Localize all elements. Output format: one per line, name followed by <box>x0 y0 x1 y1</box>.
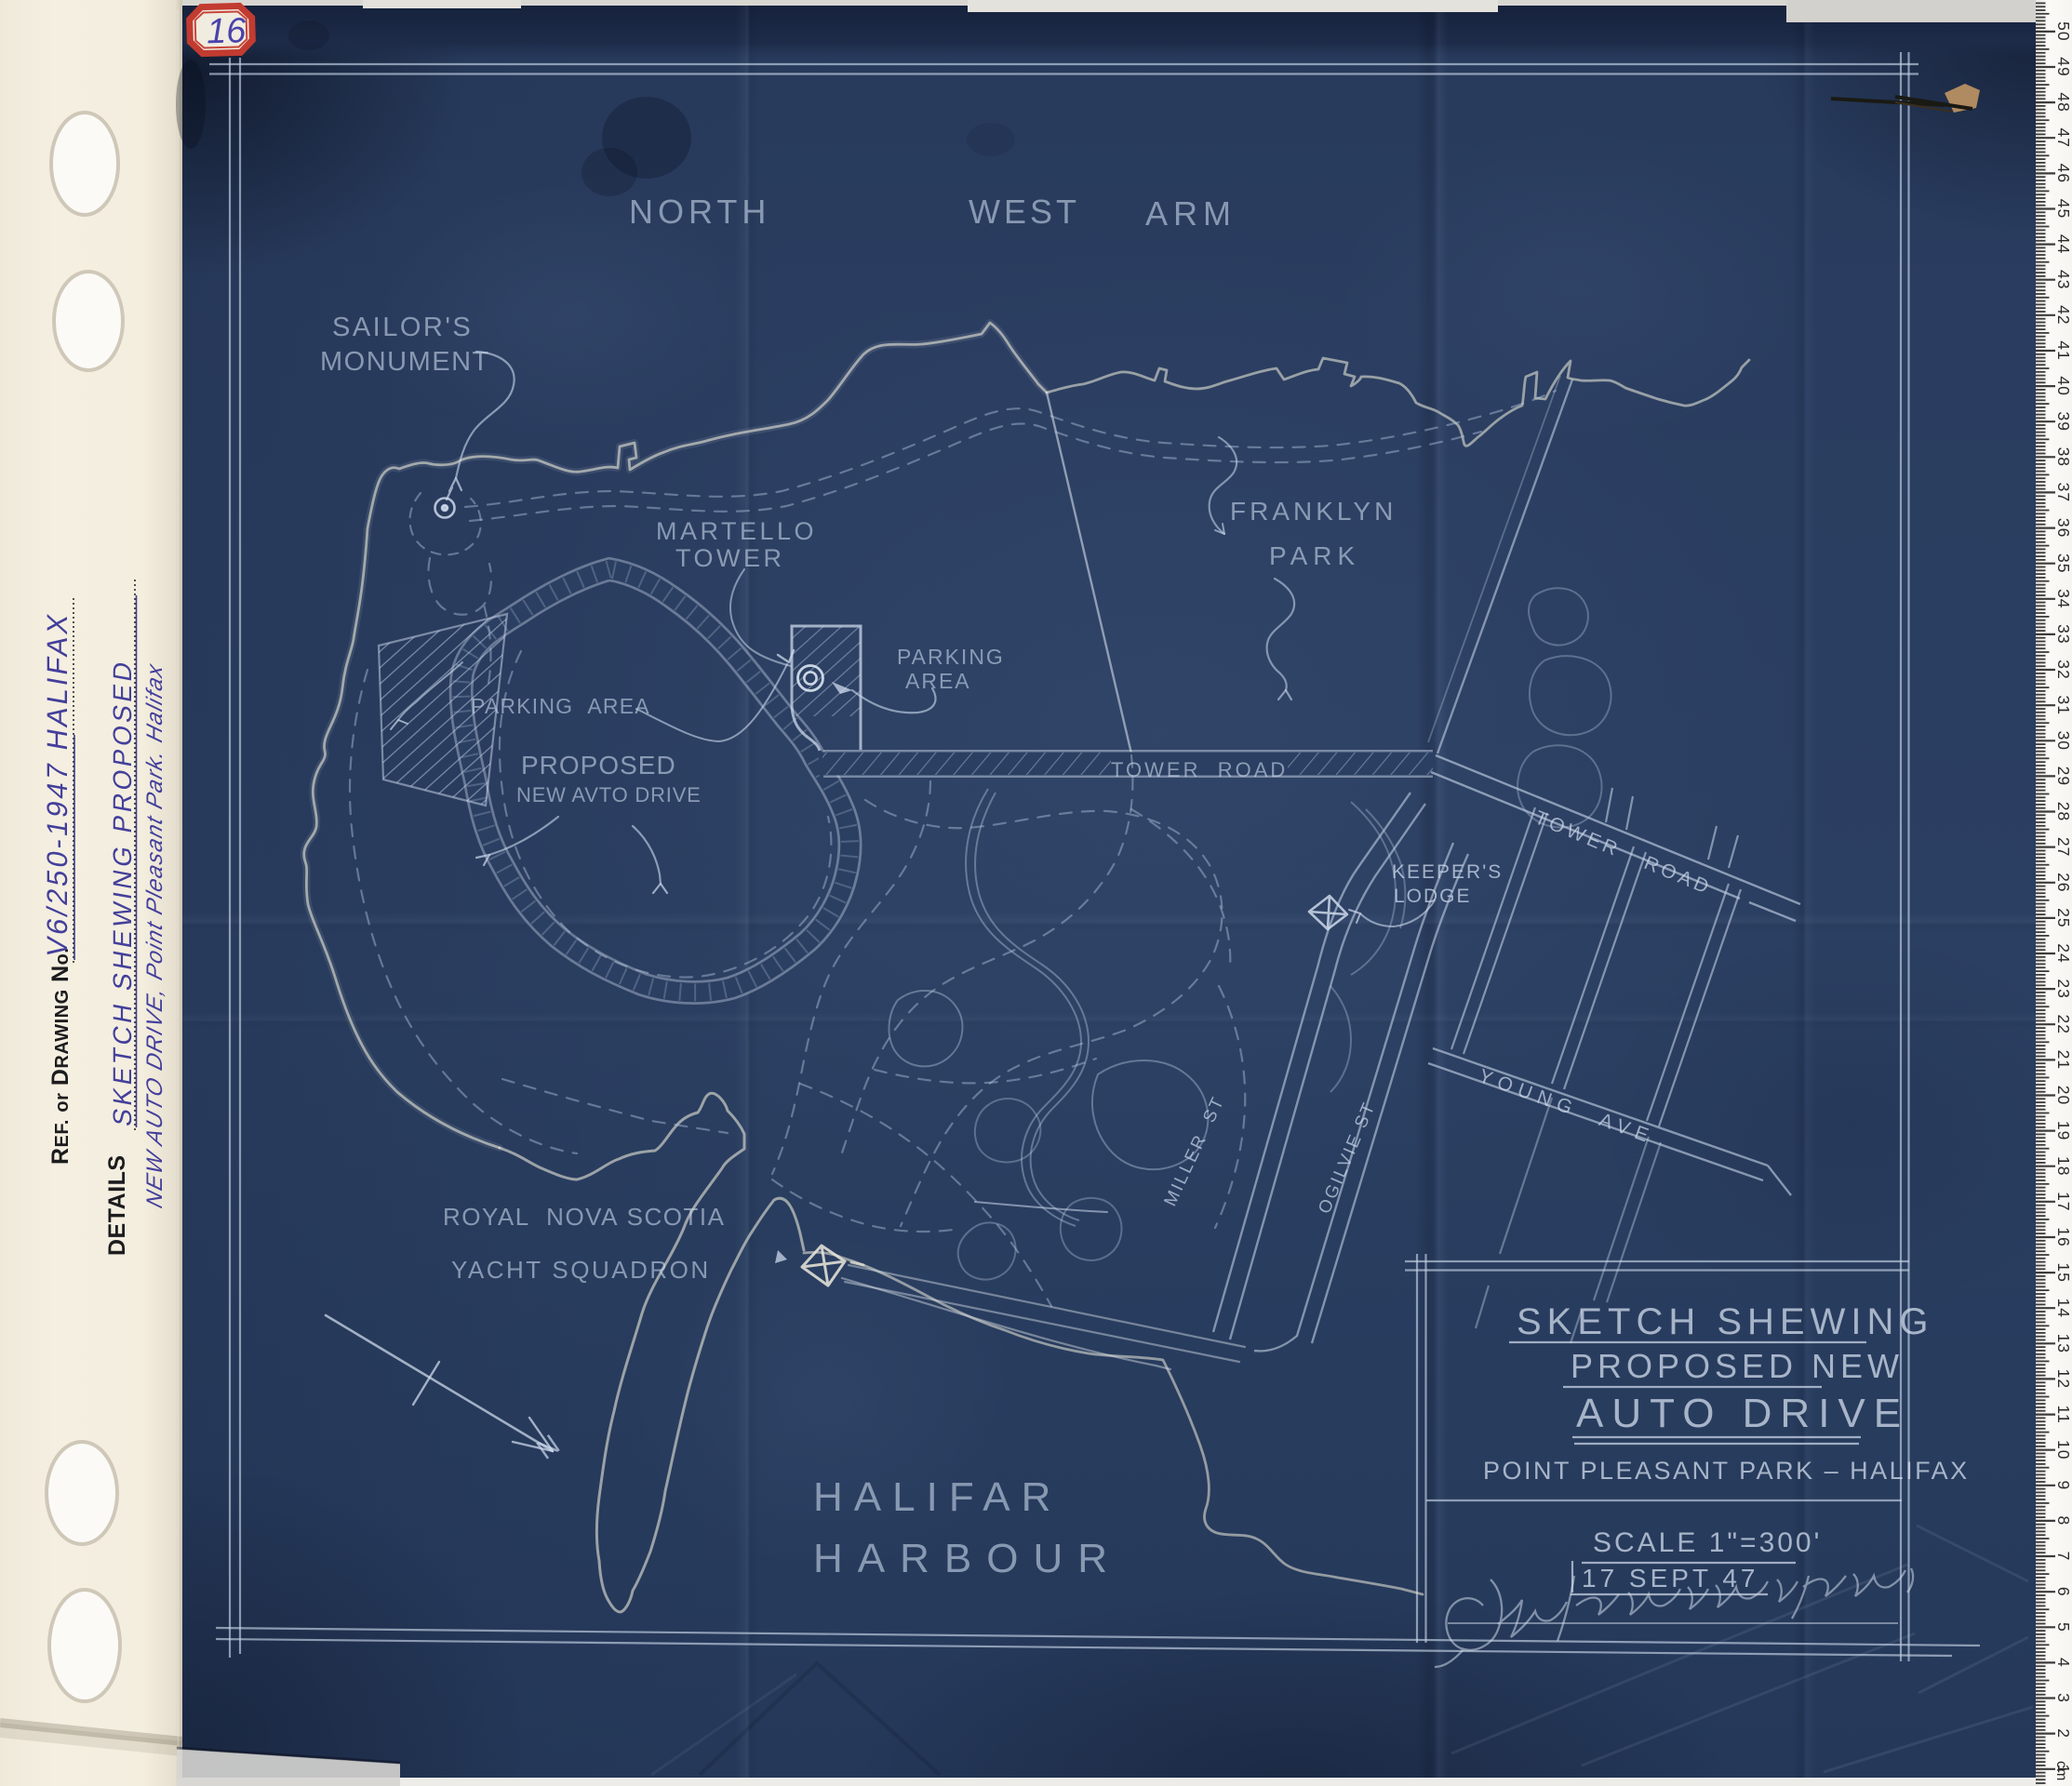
svg-text:AREA: AREA <box>905 669 971 693</box>
svg-text:PARK: PARK <box>1269 541 1360 570</box>
svg-text:43: 43 <box>2054 270 2072 289</box>
svg-text:28: 28 <box>2054 802 2072 821</box>
svg-text:39: 39 <box>2054 411 2072 431</box>
svg-text:10: 10 <box>2054 1440 2072 1459</box>
svg-text:25: 25 <box>2054 908 2072 927</box>
svg-text:32: 32 <box>2054 660 2072 679</box>
svg-text:8: 8 <box>2054 1516 2072 1526</box>
svg-text:NORTH: NORTH <box>629 193 770 231</box>
svg-text:AUTO DRIVE: AUTO DRIVE <box>1576 1391 1909 1436</box>
svg-text:26: 26 <box>2054 873 2072 892</box>
svg-text:5: 5 <box>2054 1622 2072 1633</box>
svg-text:27: 27 <box>2054 837 2072 857</box>
svg-text:KEEPER'S: KEEPER'S <box>1392 861 1503 883</box>
svg-text:LODGE: LODGE <box>1394 886 1472 907</box>
svg-text:17 SEPT 47: 17 SEPT 47 <box>1582 1564 1758 1593</box>
svg-text:31: 31 <box>2054 695 2072 714</box>
svg-text:16: 16 <box>2054 1227 2072 1246</box>
svg-text:POINT PLEASANT PARK – HALIFAX: POINT PLEASANT PARK – HALIFAX <box>1483 1457 1970 1485</box>
svg-text:SKETCH SHEWING PROPOSED: SKETCH SHEWING PROPOSED <box>107 657 137 1129</box>
svg-text:50: 50 <box>2054 21 2072 41</box>
svg-text:V6/250-1947 HALIFAX: V6/250-1947 HALIFAX <box>41 609 74 960</box>
svg-text:N: N <box>531 1429 566 1465</box>
svg-text:23: 23 <box>2054 979 2072 998</box>
svg-text:REF. or DRAWING No.: REF. or DRAWING No. <box>47 948 74 1165</box>
svg-text:cm: cm <box>2053 1761 2069 1780</box>
svg-text:14: 14 <box>2054 1298 2072 1317</box>
svg-text:YACHT SQUADRON: YACHT SQUADRON <box>451 1256 711 1284</box>
svg-text:PARKING: PARKING <box>897 645 1005 669</box>
svg-text:21: 21 <box>2054 1050 2072 1070</box>
svg-text:WEST: WEST <box>969 193 1080 231</box>
svg-text:34: 34 <box>2054 589 2072 608</box>
svg-text:41: 41 <box>2054 340 2072 360</box>
svg-text:HARBOUR: HARBOUR <box>813 1536 1122 1581</box>
svg-text:ROYAL NOVA SCOTIA: ROYAL NOVA SCOTIA <box>443 1203 725 1231</box>
svg-text:ARM: ARM <box>1145 194 1237 233</box>
svg-text:12: 12 <box>2054 1369 2072 1389</box>
svg-text:DETAILS: DETAILS <box>104 1154 130 1256</box>
svg-text:PROPOSED NEW: PROPOSED NEW <box>1571 1347 1904 1385</box>
svg-text:11: 11 <box>2054 1406 2072 1424</box>
svg-text:44: 44 <box>2054 234 2072 254</box>
svg-text:NEW AUTO DRIVE, Point Pleasant: NEW AUTO DRIVE, Point Pleasant Park. Hal… <box>142 660 167 1211</box>
svg-text:48: 48 <box>2054 92 2072 112</box>
svg-text:42: 42 <box>2054 305 2072 325</box>
svg-text:18: 18 <box>2054 1156 2072 1176</box>
svg-text:24: 24 <box>2054 943 2072 963</box>
svg-text:37: 37 <box>2054 483 2072 502</box>
svg-text:TOWER: TOWER <box>675 544 785 572</box>
svg-text:7: 7 <box>2054 1552 2072 1562</box>
svg-text:17: 17 <box>2054 1192 2072 1211</box>
svg-text:2: 2 <box>2054 1728 2072 1739</box>
svg-text:SCALE 1"=300': SCALE 1"=300' <box>1593 1527 1822 1558</box>
svg-text:PARKING AREA: PARKING AREA <box>471 694 650 718</box>
svg-text:3: 3 <box>2054 1693 2072 1703</box>
svg-text:13: 13 <box>2054 1334 2072 1353</box>
svg-text:9: 9 <box>2054 1480 2072 1490</box>
svg-text:19: 19 <box>2054 1121 2072 1140</box>
svg-text:29: 29 <box>2054 766 2072 786</box>
svg-text:MARTELLO: MARTELLO <box>656 517 817 545</box>
svg-text:YOUNG AVE: YOUNG AVE <box>1476 1065 1657 1149</box>
svg-text:30: 30 <box>2054 731 2072 751</box>
svg-text:TOWER ROAD: TOWER ROAD <box>1531 806 1715 899</box>
svg-text:NEW AVTO DRIVE: NEW AVTO DRIVE <box>516 783 702 806</box>
svg-text:46: 46 <box>2054 164 2072 183</box>
svg-text:33: 33 <box>2054 624 2072 644</box>
svg-text:TOWER ROAD: TOWER ROAD <box>1111 758 1288 781</box>
svg-text:38: 38 <box>2054 447 2072 467</box>
svg-text:MILLER ST: MILLER ST <box>1160 1093 1228 1209</box>
svg-text:20: 20 <box>2054 1086 2072 1105</box>
svg-text:49: 49 <box>2054 57 2072 76</box>
svg-text:40: 40 <box>2054 376 2072 395</box>
svg-text:35: 35 <box>2054 553 2072 573</box>
svg-text:36: 36 <box>2054 518 2072 538</box>
svg-text:15: 15 <box>2054 1262 2072 1282</box>
svg-text:45: 45 <box>2054 199 2072 219</box>
svg-text:47: 47 <box>2054 127 2072 147</box>
svg-text:16: 16 <box>206 11 247 51</box>
svg-text:OGILVIE ST: OGILVIE ST <box>1315 1099 1380 1217</box>
svg-text:FRANKLYN: FRANKLYN <box>1230 497 1397 526</box>
svg-text:SKETCH SHEWING: SKETCH SHEWING <box>1517 1301 1933 1342</box>
svg-text:HALIFAR: HALIFAR <box>813 1474 1062 1520</box>
svg-text:MONUMENT: MONUMENT <box>320 347 490 377</box>
svg-text:SAILOR'S: SAILOR'S <box>332 313 473 342</box>
svg-text:22: 22 <box>2054 1014 2072 1033</box>
svg-text:4: 4 <box>2054 1658 2072 1668</box>
svg-text:6: 6 <box>2054 1587 2072 1597</box>
svg-text:PROPOSED: PROPOSED <box>521 751 676 780</box>
